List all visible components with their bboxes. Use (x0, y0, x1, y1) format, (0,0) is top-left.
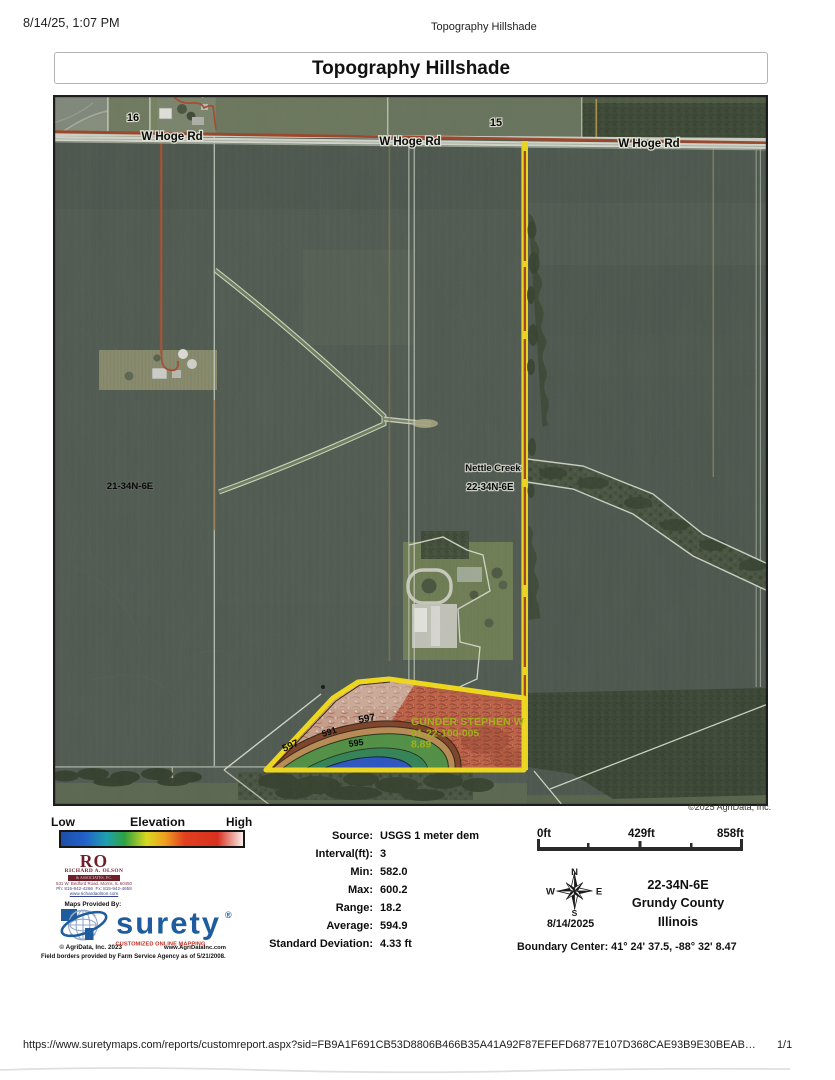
svg-text:W: W (546, 887, 555, 898)
svg-text:N: N (571, 867, 578, 878)
svg-text:01-22-100-005: 01-22-100-005 (411, 729, 479, 740)
svg-text:22-34N-6E: 22-34N-6E (467, 482, 514, 493)
svg-text:W Hoge Rd: W Hoge Rd (379, 136, 440, 148)
svg-text:15: 15 (490, 117, 502, 129)
svg-text:595: 595 (348, 737, 364, 749)
svg-text:S: S (572, 908, 578, 918)
svg-text:W Hoge Rd: W Hoge Rd (141, 131, 202, 143)
svg-text:8.89: 8.89 (411, 740, 431, 751)
svg-text:21-34N-6E: 21-34N-6E (107, 481, 154, 492)
svg-text:GUNDER STEPHEN W: GUNDER STEPHEN W (411, 717, 524, 728)
svg-text:Nettle Creek: Nettle Creek (465, 463, 521, 474)
svg-text:W Hoge Rd: W Hoge Rd (618, 138, 679, 150)
svg-text:16: 16 (127, 112, 139, 124)
